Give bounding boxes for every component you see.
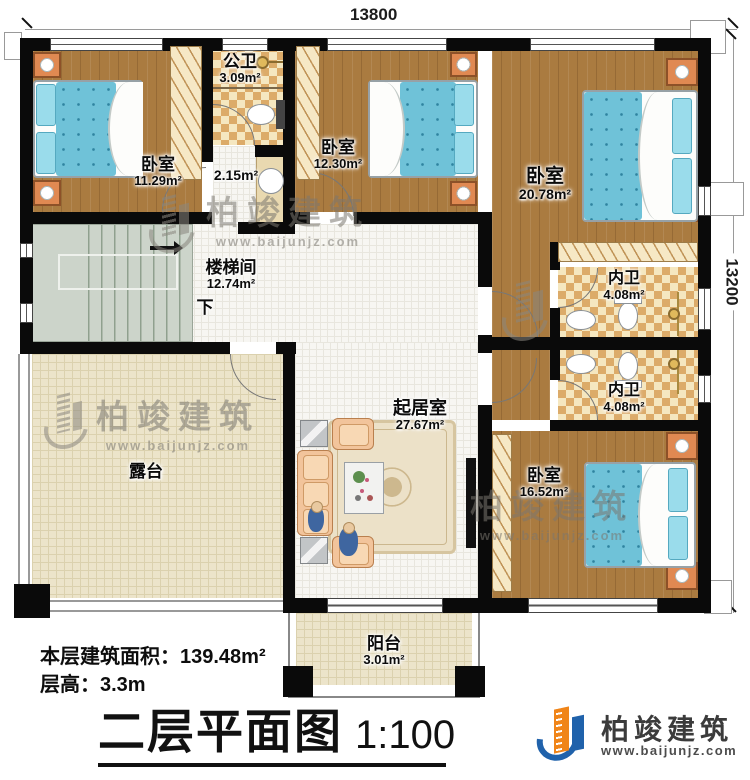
brand-logo-icon (534, 704, 594, 766)
person-figure (339, 527, 358, 556)
shower-head-icon (668, 308, 680, 320)
toilet (618, 302, 638, 330)
bed-pillow (36, 132, 56, 174)
bed-pillow (672, 158, 692, 214)
plan-title-text: 二层平面图 (98, 708, 343, 755)
room-label-balcony: 阳台 3.01m² (363, 634, 404, 668)
watermark-logo-icon (500, 278, 552, 342)
terrace-railing (28, 354, 30, 612)
pillar (14, 584, 50, 618)
room-label-terrace: 露台 (129, 462, 163, 481)
brand-website: www.baijunjz.com (601, 743, 737, 758)
bed-pillow (668, 468, 688, 512)
title-underline (98, 763, 446, 767)
bed-blanket (638, 464, 668, 566)
table-item (355, 495, 361, 501)
wall (354, 212, 478, 224)
top-dimension-line (25, 29, 737, 30)
watermark-building (516, 280, 530, 323)
bed-pillow (672, 98, 692, 154)
stair-down-label: 下 (197, 298, 214, 317)
shower-head-icon (668, 358, 680, 370)
watermark-logo-icon (146, 192, 200, 254)
watermark-text: 柏竣建筑 www.baijunjz.com (96, 390, 260, 453)
plan-scale-text: 1:100 (355, 715, 455, 755)
watermark-building (73, 401, 82, 431)
shower-rail (677, 350, 679, 394)
person-figure (308, 506, 324, 532)
window (698, 186, 711, 216)
wall (202, 38, 213, 162)
window (20, 243, 33, 258)
toilet (618, 352, 638, 380)
table-item (367, 495, 373, 501)
window (222, 38, 268, 51)
plant-icon (353, 471, 365, 483)
sink (566, 310, 596, 330)
nightstand (450, 52, 477, 77)
bed-pillow (36, 84, 56, 126)
window (20, 303, 33, 323)
bed-mattress (56, 82, 116, 176)
person-head (343, 522, 355, 534)
room-label-inner-bath2: 内卫 4.08m² (603, 382, 644, 414)
toilet (247, 104, 275, 125)
nightstand (666, 432, 698, 460)
right-dimension-line (733, 38, 734, 613)
pillar (283, 666, 313, 697)
room-label-bedroom1: 卧室 11.29m² (134, 155, 182, 189)
pillar (455, 666, 485, 697)
toilet-tank (276, 100, 285, 129)
side-table (300, 420, 328, 447)
stair-railing (58, 254, 178, 290)
dim-tick (725, 28, 736, 39)
balcony-sliding-door (327, 598, 443, 613)
building-area-text: 本层建筑面积：139.48m² (40, 640, 266, 669)
dim-tick (727, 17, 738, 28)
cushion (303, 455, 329, 480)
watermark-text: 柏竣建筑 www.baijunjz.com (206, 186, 370, 249)
wall (283, 598, 327, 613)
wall (20, 342, 230, 354)
wall (447, 38, 530, 51)
sink (566, 354, 596, 374)
nightstand (33, 180, 61, 206)
nightstand (450, 181, 477, 206)
wall (658, 598, 711, 613)
watermark-building (179, 203, 189, 235)
floor-height-text: 层高：3.3m (40, 668, 146, 697)
wall (283, 342, 295, 598)
brand-name: 柏竣建筑 (601, 708, 733, 748)
wardrobe (558, 242, 698, 262)
floor-plan-canvas: 13800 13200 (0, 0, 750, 780)
terrace-railing (18, 600, 286, 602)
logo-building-orange (554, 706, 569, 753)
bed-pillow (668, 516, 688, 560)
window (528, 598, 658, 613)
watermark-building (57, 392, 70, 433)
terrace-railing (18, 610, 286, 612)
room-label-bedroom3: 卧室 20.78m² (519, 166, 571, 203)
room-label-stairwell: 楼梯间 12.74m² (206, 258, 257, 292)
plan-title: 二层平面图 1:100 (98, 708, 455, 755)
wall (443, 598, 528, 613)
shower-screen-line (213, 87, 283, 89)
bed-mattress (400, 82, 456, 176)
wall (478, 212, 492, 287)
window (698, 288, 711, 330)
room-label-inner-bath1: 内卫 4.08m² (603, 270, 644, 302)
window (327, 38, 447, 51)
nightstand (666, 58, 698, 86)
watermark-building (162, 194, 176, 237)
room-label-bedroom2: 卧室 12.30m² (314, 138, 362, 172)
room-label-public-bath: 公卫 3.09m² (219, 52, 260, 86)
bed-pillow (454, 132, 474, 174)
side-table (300, 537, 328, 564)
bed-mattress (584, 92, 642, 220)
room-label-bedroom4: 卧室 16.52m² (520, 466, 568, 500)
dim-tick (21, 17, 32, 28)
cushion (339, 424, 369, 446)
bed-pillow (454, 84, 474, 126)
wall (550, 420, 698, 431)
coffee-table (344, 462, 384, 514)
watermark-logo-icon (42, 390, 92, 450)
terrace-railing (18, 354, 20, 612)
window (530, 38, 655, 51)
shower-arm (269, 61, 283, 63)
watermark-building (533, 290, 543, 322)
room-label-vestibule: 2.15m² (214, 168, 258, 184)
room-label-living: 起居室 27.67m² (393, 398, 447, 433)
window (698, 375, 711, 403)
bed-blanket (638, 92, 670, 220)
window (50, 38, 163, 51)
top-dimension-label: 13800 (345, 5, 402, 25)
logo-building-blue (572, 715, 584, 752)
right-dimension-label: 13200 (722, 253, 742, 310)
armchair (332, 418, 374, 450)
person-head (311, 501, 323, 513)
nightstand (33, 52, 61, 78)
